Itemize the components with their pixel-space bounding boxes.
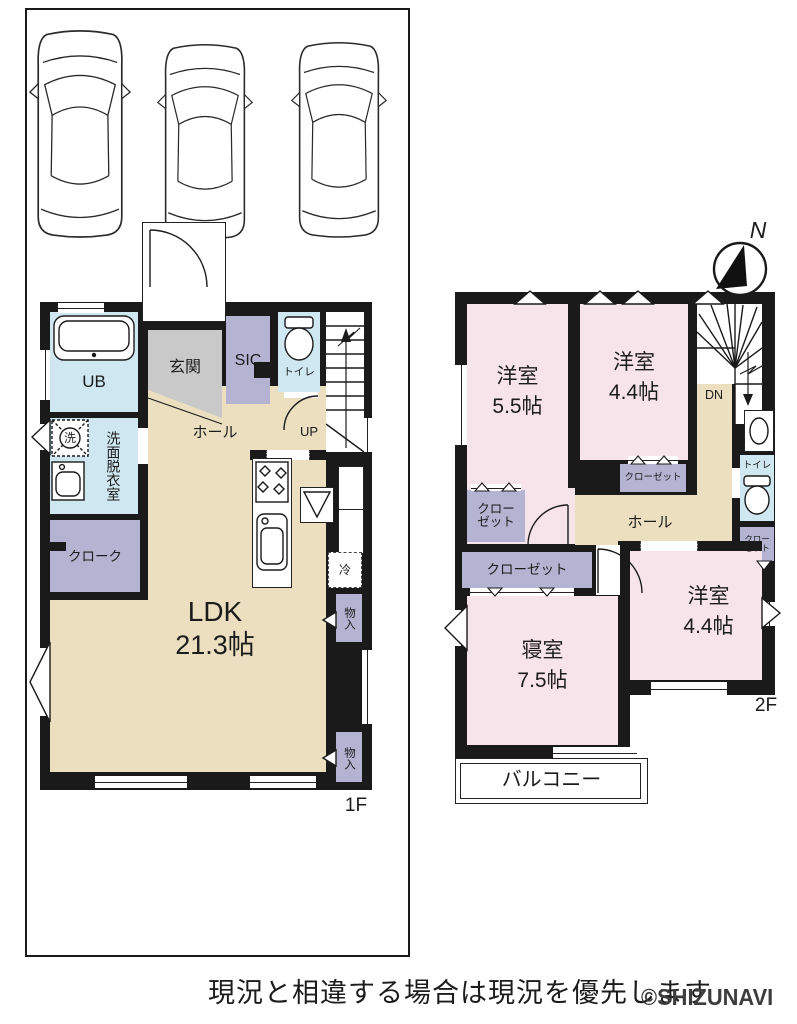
label-ldk: LDK xyxy=(150,596,280,628)
label-closet-top: クローゼット xyxy=(620,471,686,485)
label-washer: 洗 xyxy=(58,426,82,450)
room-ub xyxy=(50,312,138,412)
label-floor1: 1F xyxy=(336,794,376,818)
label-datsui: 脱衣室 xyxy=(106,459,121,501)
label-cloak: クローク xyxy=(50,548,140,566)
label-fridge: 冷 xyxy=(330,560,360,580)
closet-sliding-door xyxy=(628,456,678,464)
label-toilet-1f: トイレ xyxy=(278,366,320,380)
door-opening xyxy=(138,428,148,464)
closet-sliding-door xyxy=(471,484,521,491)
label-storage2: 物入 xyxy=(336,736,362,780)
room-ldk-left xyxy=(50,600,148,772)
window xyxy=(362,650,372,724)
cupboard-divider xyxy=(338,509,364,510)
room-west3 xyxy=(630,545,762,680)
label-closet-main: クローゼット xyxy=(462,559,592,581)
window xyxy=(362,418,372,452)
label-storage2-text: 物入 xyxy=(343,747,355,770)
car-icon xyxy=(156,30,254,252)
label-genkan: 玄関 xyxy=(152,358,218,378)
compass-icon xyxy=(714,243,766,295)
label-bedroom: 寝室 xyxy=(467,638,618,664)
door-opening xyxy=(284,392,318,398)
door-opening xyxy=(732,468,740,498)
stairs-down-area xyxy=(697,304,762,384)
label-ldk-size: 21.3帖 xyxy=(135,630,295,660)
compass-north-label: N xyxy=(742,216,774,244)
window xyxy=(553,747,637,758)
label-up: UP xyxy=(294,424,324,440)
door-zone-bedroom xyxy=(525,488,575,544)
window xyxy=(95,776,187,788)
label-floor2: 2F xyxy=(744,694,788,718)
stairs-up-area xyxy=(326,312,364,452)
entrance-door-box xyxy=(142,222,226,322)
window xyxy=(455,365,467,445)
label-west3-size: 4.4帖 xyxy=(655,614,762,640)
vanity-alcove xyxy=(744,410,774,452)
label-closet-right: クローゼット xyxy=(740,530,774,558)
label-west2: 洋室 xyxy=(580,350,688,376)
car-icon xyxy=(290,28,388,250)
kitchen-counter xyxy=(252,458,292,588)
watermark-logo: ©SHIZUNAVI xyxy=(641,984,773,1011)
label-west3: 洋室 xyxy=(655,584,762,610)
window xyxy=(762,602,775,626)
wall-opening xyxy=(640,541,698,551)
room-toilet-1f xyxy=(278,312,320,392)
label-dn: DN xyxy=(696,388,732,404)
window xyxy=(250,776,316,788)
window xyxy=(455,610,467,646)
closet-sliding-door xyxy=(470,588,574,596)
label-hall-2f: ホール xyxy=(595,514,705,532)
label-bedroom-size: 7.5帖 xyxy=(467,668,618,694)
window xyxy=(58,303,104,313)
label-toilet-2f: トイレ xyxy=(740,459,774,472)
floorplan-canvas: UB 玄関 SIC トイレ ホール UP 洗 洗面脱衣室 クローク LDK 21… xyxy=(0,0,797,1024)
label-west2-size: 4.4帖 xyxy=(580,380,688,406)
label-balcony: バルコニー xyxy=(455,766,648,794)
label-ub: UB xyxy=(62,372,126,392)
label-closet-left-2: ゼット xyxy=(477,516,515,529)
window xyxy=(40,350,50,400)
label-closet-left: クローゼット xyxy=(467,497,525,535)
label-storage1: 物入 xyxy=(336,596,362,640)
window xyxy=(651,682,727,695)
label-west1-size: 5.5帖 xyxy=(467,394,568,420)
range-hood-box xyxy=(300,487,334,523)
label-west1: 洋室 xyxy=(467,364,568,390)
label-senmen-datsui: 洗面脱衣室 xyxy=(90,420,136,512)
cupboard xyxy=(338,466,364,554)
door-opening xyxy=(596,545,620,595)
label-sic: SIC xyxy=(226,352,270,370)
label-hall-1f: ホール xyxy=(180,424,250,442)
car-icon xyxy=(28,16,132,250)
label-closet-right-2: ゼット xyxy=(744,544,770,553)
label-storage1-text: 物入 xyxy=(343,607,355,630)
label-senmen: 洗面 xyxy=(106,431,121,459)
